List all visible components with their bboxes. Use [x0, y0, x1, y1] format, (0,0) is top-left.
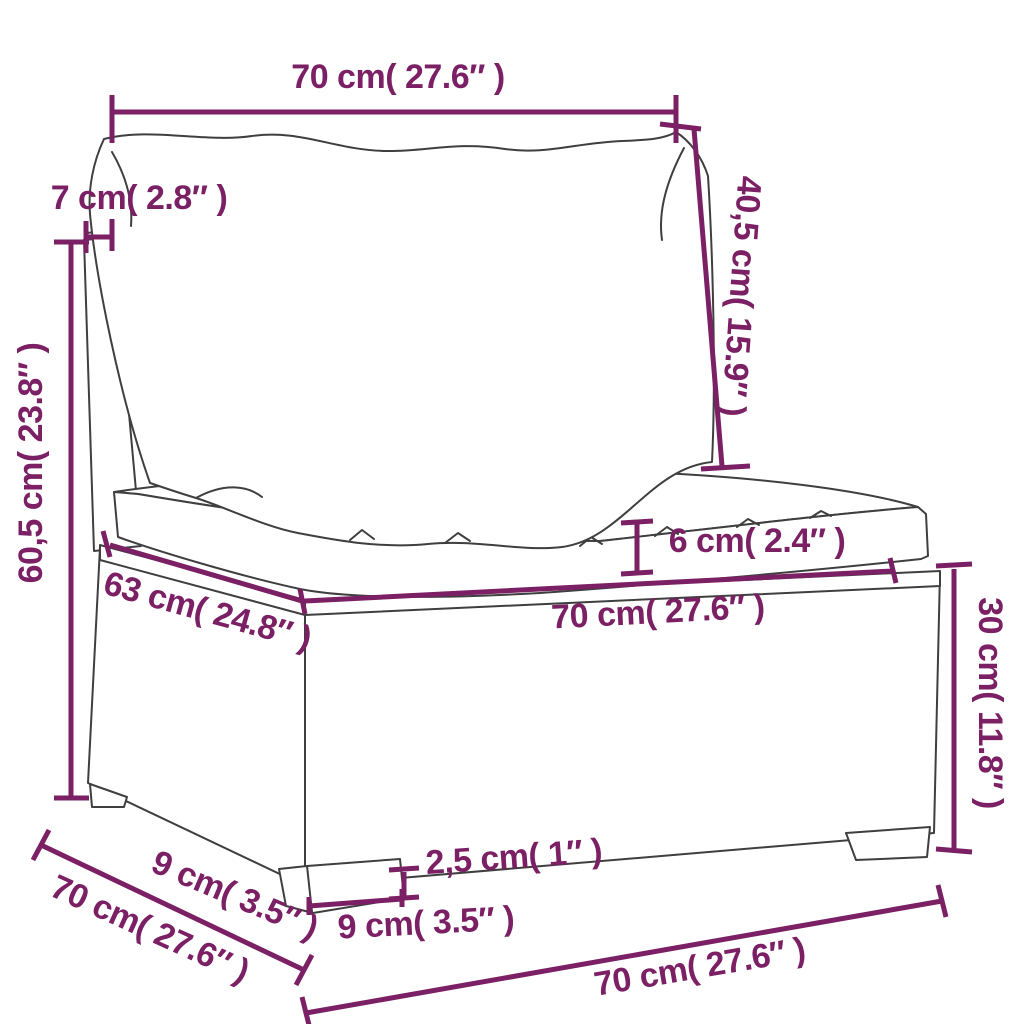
dim-back-panel-thickness-label: 7 cm( 2.8″ ) [51, 179, 228, 217]
dim-base-height: 30 cm( 11.8″ ) [936, 564, 1009, 852]
dim-back-cushion-width: 70 cm( 27.6″ ) [112, 58, 676, 143]
dim-backrest-height-label: 60,5 cm( 23.8″ ) [12, 343, 50, 584]
dimension-diagram: 70 cm( 27.6″ ) 7 cm( 2.8″ ) 60,5 cm( 23.… [0, 0, 1024, 1024]
dim-front-foot-width-label: 9 cm( 3.5″ ) [337, 899, 515, 946]
dim-back-cushion-height-label: 40,5 cm( 15.9″ ) [714, 175, 769, 418]
dim-base-height-label: 30 cm( 11.8″ ) [971, 597, 1009, 809]
diagram-svg: 70 cm( 27.6″ ) 7 cm( 2.8″ ) 60,5 cm( 23.… [0, 0, 1024, 1024]
dim-seat-cushion-thickness-label: 6 cm( 2.4″ ) [669, 522, 846, 560]
front-right-foot [846, 827, 930, 860]
dim-backrest-height: 60,5 cm( 23.8″ ) [12, 242, 89, 798]
dim-back-cushion-width-label: 70 cm( 27.6″ ) [291, 58, 504, 96]
